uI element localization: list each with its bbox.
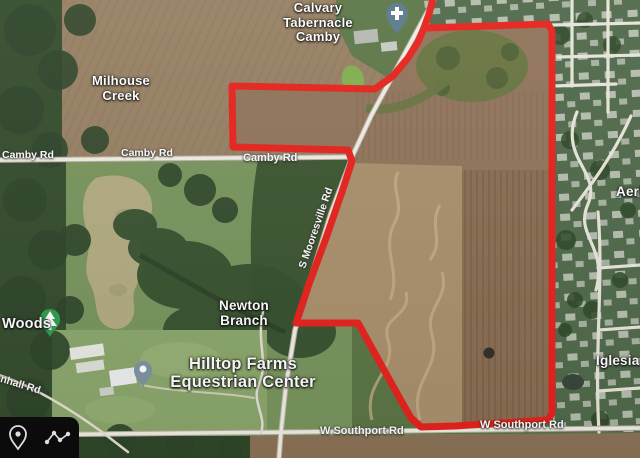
satellite-map — [0, 0, 640, 458]
screenshot-toolbar — [0, 417, 79, 458]
route-icon[interactable] — [44, 429, 72, 447]
map-canvas[interactable]: Calvary Tabernacle Camby Milhouse Creek … — [0, 0, 640, 458]
location-pin-icon[interactable] — [7, 425, 29, 451]
terrain-layer — [0, 0, 640, 458]
